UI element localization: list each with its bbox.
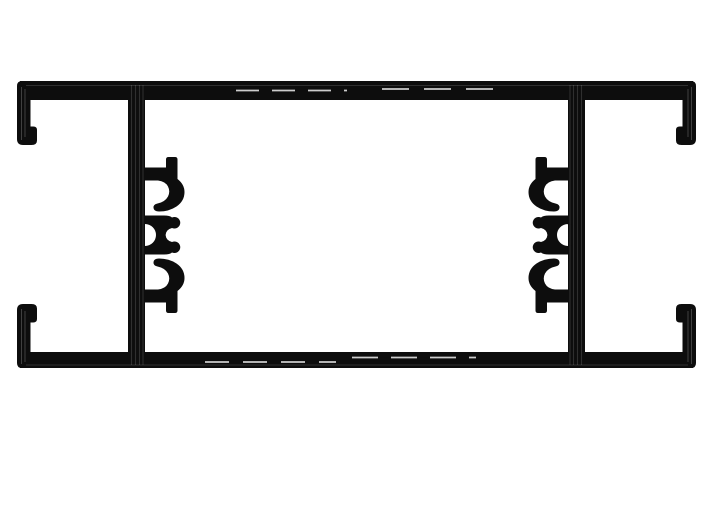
screw-boss-upper-right: [529, 157, 569, 212]
top-rail: [20, 81, 693, 100]
screw-boss-lower-right: [529, 259, 569, 314]
aluminum-profile-cross-section: [0, 0, 713, 525]
screw-boss-lower-left: [145, 259, 185, 314]
bottom-rail: [20, 352, 693, 368]
screw-boss-upper-left: [145, 157, 185, 212]
technical-drawing-page: [0, 0, 713, 525]
